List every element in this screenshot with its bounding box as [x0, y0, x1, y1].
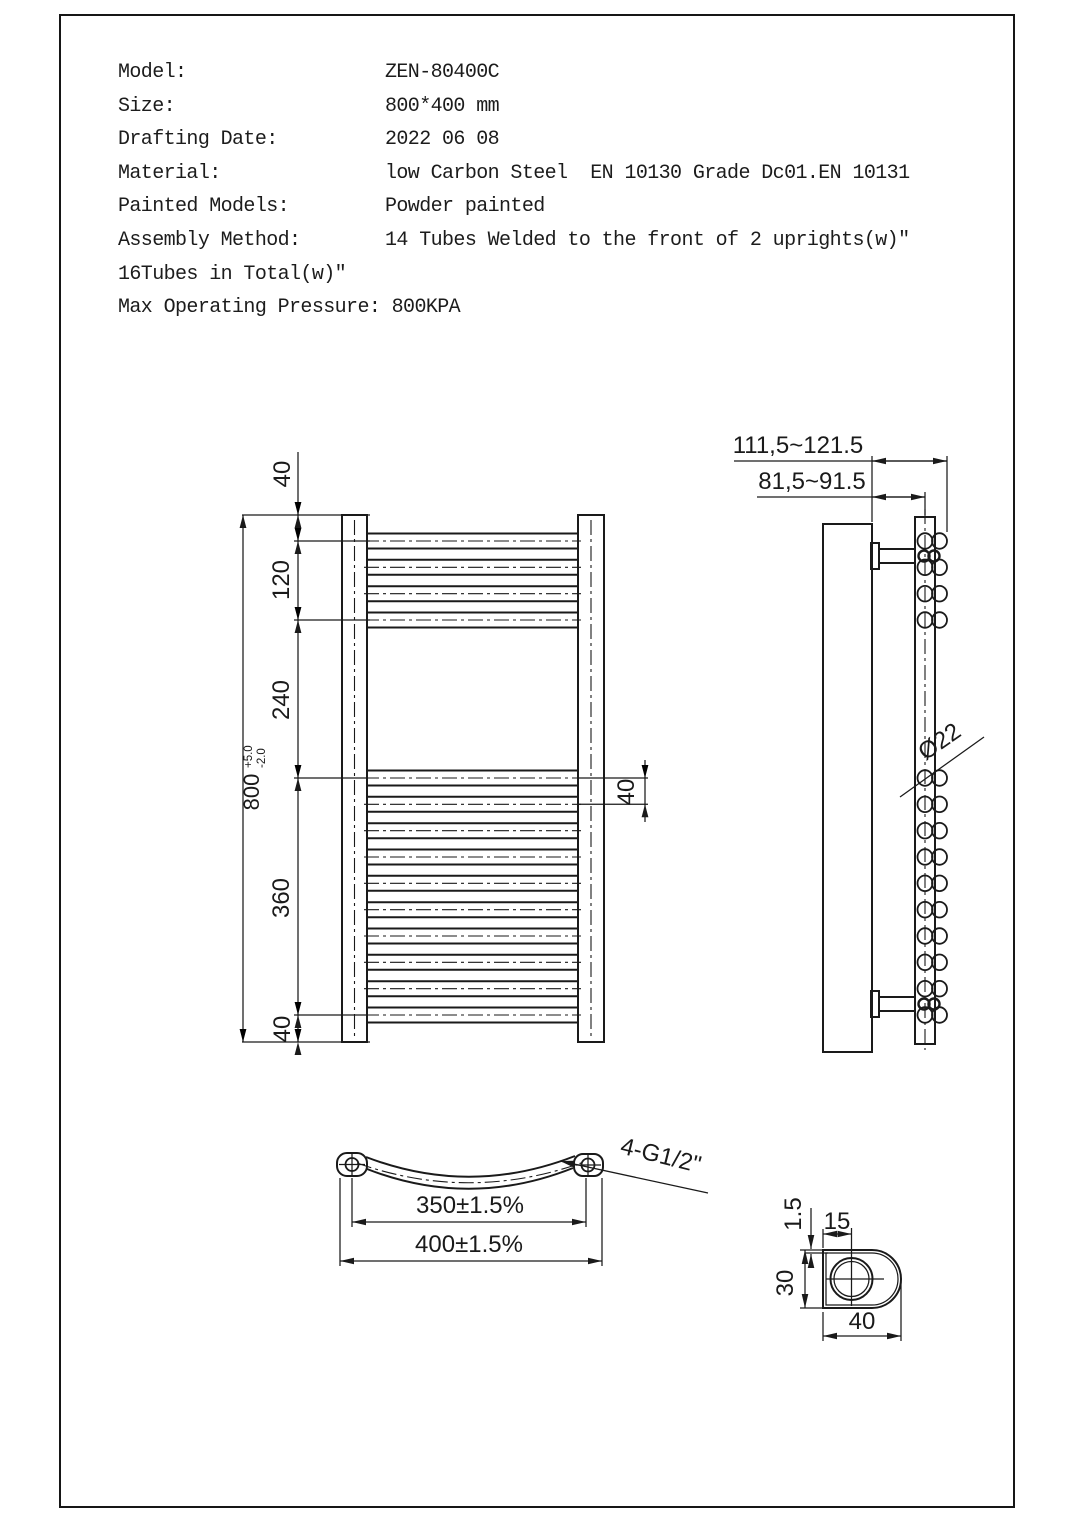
dim-wall-thickness: 1.5 [780, 1197, 807, 1230]
bottom-view: 4-G1/2" 350±1.5% 400±1.5% [337, 1133, 708, 1266]
detail-view: 30 40 15 1.5 [772, 1197, 901, 1341]
dim-tolerance-plus: +5.0 [243, 745, 255, 768]
technical-drawing: 40 120 240 360 40 40 800 +5.0 -2.0 [0, 0, 1080, 1527]
dim-profile-depth: 30 [772, 1270, 799, 1297]
dim-depth-min: 81,5~91.5 [758, 468, 865, 495]
dim-centers: 350±1.5% [416, 1192, 524, 1219]
engineering-drawing-page: { "specs": { "rows": [ {"label": "Model:… [0, 0, 1080, 1527]
side-dimensions: 111,5~121.5 81,5~91.5 Ø22 [733, 432, 984, 797]
front-dimension-lines [240, 452, 649, 1055]
dim-tube-diameter: Ø22 [913, 718, 966, 766]
dim-tube-pitch: 40 [613, 779, 640, 806]
side-view: 111,5~121.5 81,5~91.5 Ø22 [733, 432, 984, 1052]
cross-tubes [364, 534, 581, 1023]
dim-tolerance-minus: -2.0 [256, 748, 268, 768]
dim-hole-offset: 15 [824, 1208, 851, 1235]
curved-tube-plan [357, 1156, 584, 1189]
wall-section [823, 524, 872, 1052]
dim-overall-height-group: 800 +5.0 -2.0 [239, 745, 268, 810]
dim-bottom-section: 360 [268, 878, 295, 918]
dim-overall-height: 800 [239, 774, 264, 811]
dim-overall-width: 400±1.5% [415, 1231, 523, 1258]
bottom-dimensions: 4-G1/2" 350±1.5% 400±1.5% [340, 1133, 708, 1266]
dim-profile-width: 40 [849, 1308, 876, 1335]
front-view: 40 120 240 360 40 40 800 +5.0 -2.0 [239, 452, 648, 1055]
dim-bottom-margin: 40 [269, 1016, 296, 1043]
dim-depth-max: 111,5~121.5 [733, 432, 864, 459]
dim-top-section: 120 [268, 560, 295, 600]
dim-connections: 4-G1/2" [618, 1133, 704, 1179]
tube-sections [918, 533, 948, 1023]
dim-top-margin: 40 [269, 461, 296, 488]
dim-middle-gap: 240 [268, 680, 295, 720]
